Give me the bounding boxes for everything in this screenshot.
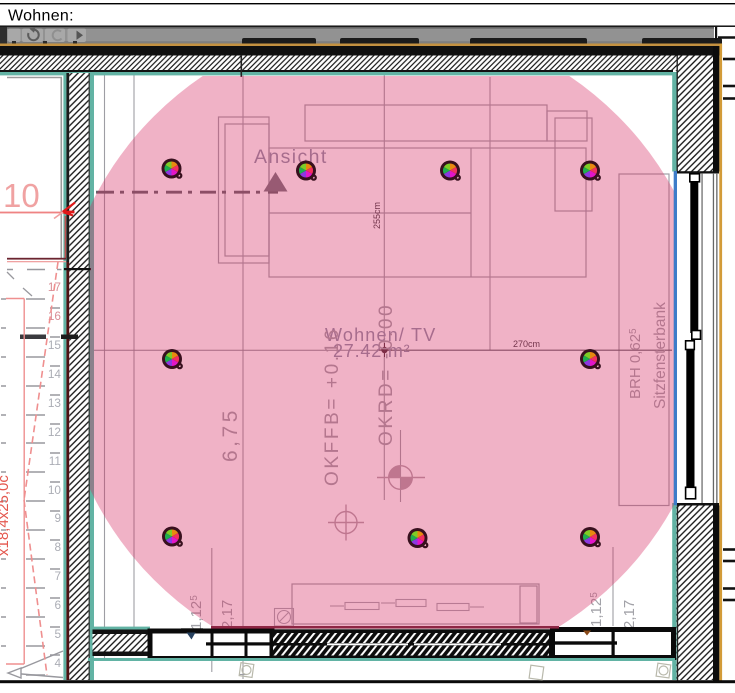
svg-text:2,17: 2,17 — [621, 600, 638, 629]
svg-text:14: 14 — [48, 367, 62, 381]
svg-text:Wohnen:: Wohnen: — [8, 8, 74, 25]
svg-text:7: 7 — [54, 569, 61, 583]
svg-text:15: 15 — [48, 338, 62, 352]
svg-text:11: 11 — [49, 454, 61, 468]
svg-text:4: 4 — [54, 656, 61, 670]
svg-text:x18,4x25,0c: x18,4x25,0c — [0, 475, 12, 556]
svg-text:12: 12 — [48, 425, 61, 439]
svg-text:9: 9 — [54, 511, 61, 525]
svg-text:13: 13 — [48, 396, 62, 410]
svg-text:10: 10 — [48, 483, 62, 497]
svg-text:8: 8 — [54, 540, 61, 554]
svg-text:10: 10 — [3, 177, 40, 214]
svg-text:6: 6 — [54, 598, 61, 612]
svg-text:5: 5 — [54, 627, 61, 641]
